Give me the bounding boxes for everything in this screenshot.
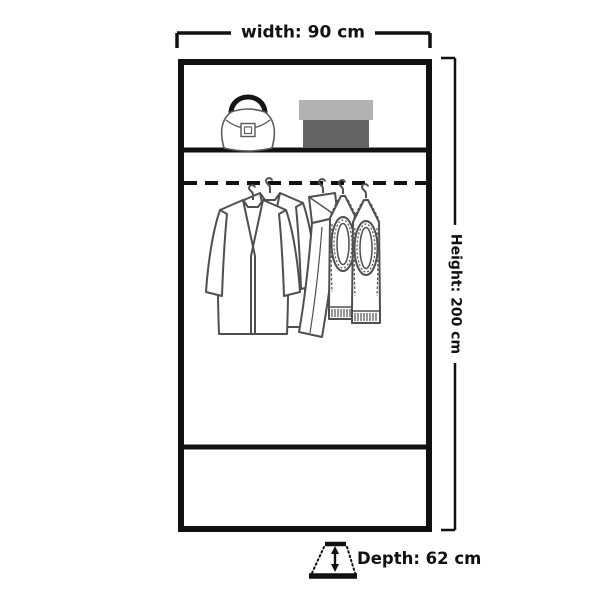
- depth-dimension-label: Depth: 62 cm: [357, 550, 481, 568]
- depth-arrows-icon: [309, 544, 357, 576]
- width-dimension-label: width: 90 cm: [231, 24, 375, 43]
- knit-vest-2-icon: [352, 184, 380, 323]
- storage-box-lid: [299, 100, 373, 120]
- handbag-icon: [222, 97, 275, 151]
- storage-box-body: [303, 120, 369, 148]
- diagram-canvas: [0, 0, 600, 600]
- height-dimension-label: Height: 200 cm: [447, 225, 462, 363]
- storage-box-icon: [299, 100, 373, 148]
- wardrobe-dimension-diagram: width: 90 cm Height: 200 cm Depth: 62 cm: [0, 0, 600, 600]
